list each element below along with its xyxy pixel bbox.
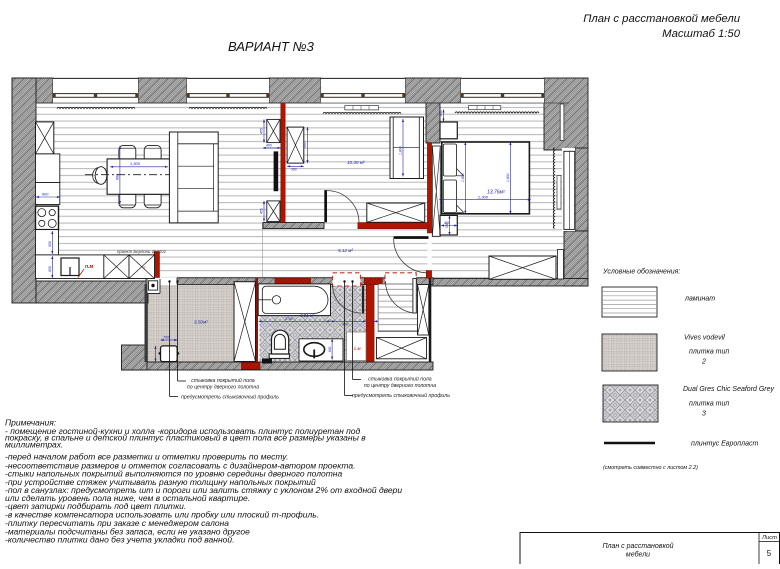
svg-text:с.м: с.м bbox=[354, 346, 361, 351]
svg-text:стыковка покрытий пола: стыковка покрытий пола bbox=[368, 375, 432, 382]
svg-text:900: 900 bbox=[342, 323, 348, 327]
svg-text:3,50м²: 3,50м² bbox=[194, 320, 208, 325]
svg-text:400: 400 bbox=[266, 143, 272, 147]
svg-text:Dual Gres Chic Seaford Grey: Dual Gres Chic Seaford Grey bbox=[683, 386, 775, 393]
svg-text:600: 600 bbox=[439, 110, 443, 116]
svg-text:600: 600 bbox=[48, 241, 52, 247]
svg-text:600: 600 bbox=[42, 192, 49, 196]
svg-text:предусмотреть стыковочный проф: предусмотреть стыковочный профиль bbox=[352, 392, 450, 399]
svg-text:800: 800 bbox=[115, 174, 119, 180]
svg-text:1,800: 1,800 bbox=[399, 146, 403, 155]
svg-text:-количество плитки дано без уч: -количество плитки дано без учета укладк… bbox=[5, 535, 234, 545]
svg-text:по центру дверного полотна: по центру дверного полотна bbox=[364, 383, 436, 389]
svg-text:плинтус Европласт: плинтус Европласт bbox=[691, 441, 758, 448]
svg-text:(смотреть совместно с листом 2: (смотреть совместно с листом 2.2) bbox=[603, 465, 698, 471]
svg-text:стыковка покрытий пола: стыковка покрытий пола bbox=[191, 377, 255, 384]
svg-text:455: 455 bbox=[260, 208, 264, 214]
svg-text:1780: 1780 bbox=[285, 317, 293, 321]
svg-text:по центру дверного полотна: по центру дверного полотна bbox=[187, 385, 259, 391]
svg-text:плитка тип: плитка тип bbox=[689, 401, 729, 408]
svg-text:Условные обозначения:: Условные обозначения: bbox=[602, 268, 680, 276]
svg-text:3,01 м²: 3,01 м² bbox=[300, 313, 315, 318]
svg-text:План с расстановкой мебели: План с расстановкой мебели bbox=[583, 13, 741, 25]
svg-text:1,500: 1,500 bbox=[130, 161, 141, 166]
svg-text:350: 350 bbox=[291, 168, 297, 172]
svg-text:600: 600 bbox=[328, 346, 332, 352]
svg-text:500: 500 bbox=[303, 142, 307, 148]
svg-text:600: 600 bbox=[48, 266, 52, 272]
svg-text:13,76м²: 13,76м² bbox=[487, 190, 505, 196]
svg-text:ламинат: ламинат bbox=[684, 296, 715, 303]
svg-text:1,800: 1,800 bbox=[506, 173, 510, 182]
svg-text:Vives vodevil: Vives vodevil bbox=[684, 335, 725, 342]
svg-text:500: 500 bbox=[445, 222, 449, 228]
svg-text:миллиметрах.: миллиметрах. bbox=[5, 439, 63, 449]
svg-text:ВАРИАНТ №3: ВАРИАНТ №3 bbox=[228, 39, 315, 54]
svg-text:План с расстановкой: План с расстановкой bbox=[602, 542, 673, 550]
svg-text:п.м: п.м bbox=[85, 264, 93, 270]
svg-text:5,12 м²: 5,12 м² bbox=[338, 248, 353, 253]
svg-text:3: 3 bbox=[702, 411, 706, 418]
svg-text:700: 700 bbox=[163, 335, 169, 339]
svg-text:2: 2 bbox=[701, 359, 706, 366]
svg-text:мебели: мебели bbox=[626, 551, 650, 559]
svg-text:455: 455 bbox=[260, 128, 264, 134]
svg-text:1,800: 1,800 bbox=[461, 173, 465, 182]
svg-text:плитка тип: плитка тип bbox=[689, 349, 729, 356]
svg-text:Масштаб 1:50: Масштаб 1:50 bbox=[662, 28, 741, 40]
svg-text:5: 5 bbox=[767, 549, 772, 558]
svg-text:проект Берлони 153101: проект Берлони 153101 bbox=[117, 249, 167, 254]
svg-text:предусмотреть стыковочный проф: предусмотреть стыковочный профиль bbox=[181, 394, 279, 401]
svg-text:Лист: Лист bbox=[761, 535, 777, 541]
svg-text:10,40 м²: 10,40 м² bbox=[347, 160, 365, 165]
